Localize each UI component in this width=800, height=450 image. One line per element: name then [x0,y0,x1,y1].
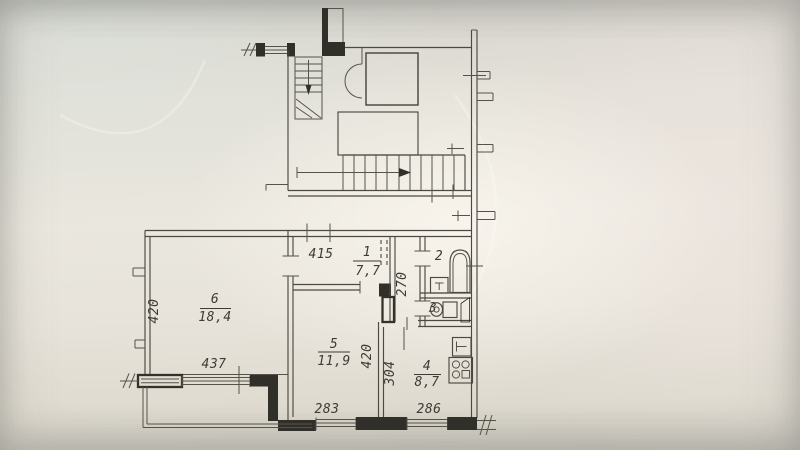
dim-bedroom-depth: 420 [360,344,375,369]
elevator-shaft [366,53,418,105]
wash-basin-icon [431,278,449,294]
dim-inner-hall-depth: 270 [395,272,410,297]
dim-kitchen-depth: 304 [383,361,398,387]
room-bedroom: 5 11,9 420 283 [315,337,375,417]
wall-break-symbol [120,374,138,389]
room-hallway-number: 1 [363,245,371,260]
dim-hallway-width: 415 [309,247,334,262]
stove-icon [449,358,473,384]
machine-room [338,112,418,155]
dim-living-width: 437 [202,357,227,372]
floor-plan-photo: 6 18,4 420 437 [0,0,800,450]
room-bedroom-area: 11,9 [317,354,350,369]
window [407,418,448,431]
room-living-area: 18,4 [198,310,231,325]
room-kitchen-number: 4 [423,359,431,374]
built-in-cupboard [383,297,395,322]
kitchen-sink-icon [453,338,472,357]
bottom-wall [316,415,496,435]
dim-kitchen-window: 286 [417,402,442,417]
room-hallway-area: 7,7 [356,264,381,279]
room-hallway: 415 1 7,7 [309,240,387,279]
room-bedroom-number: 5 [330,337,338,352]
room-kitchen: 4 8,7 304 286 [383,338,473,418]
paper-creases [60,60,496,300]
corridor-walls [266,185,472,203]
dim-bedroom-window: 283 [315,402,340,417]
inner-hall: 270 [383,272,411,322]
right-wall [447,30,495,418]
room-bathroom: 2 [431,249,471,293]
room-bathroom-number: 2 [435,249,443,264]
wall-pier [379,284,391,297]
apartment-walls [133,224,472,422]
room-wc: 3 [428,298,470,323]
room-living: 6 18,4 420 437 [120,292,316,431]
door-swing-icon [345,48,362,99]
floor-plan-drawing: 6 18,4 420 437 [0,0,800,450]
bathtub-icon [450,250,470,293]
dim-living-depth: 420 [147,299,162,324]
entrance-porch [241,8,472,191]
entrance-stairs-icon [295,57,322,119]
staircase-icon [297,155,465,191]
balcony-door-block [138,375,182,387]
room-kitchen-area: 8,7 [415,375,440,390]
wall-break-symbol [477,415,496,435]
window [316,418,356,431]
room-living-number: 6 [211,292,219,307]
vent-shaft-icon [461,298,470,323]
window [182,376,250,388]
